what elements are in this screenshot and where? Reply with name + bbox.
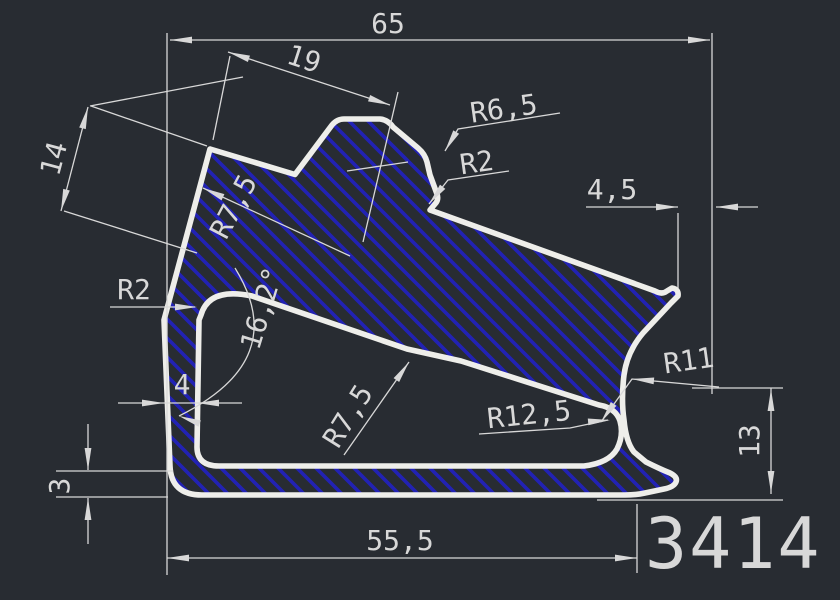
arrowhead — [394, 360, 412, 382]
arrowhead — [588, 417, 611, 426]
arrowhead — [656, 204, 678, 211]
arrowhead — [768, 389, 775, 411]
dimension-text: 14 — [34, 138, 75, 179]
arrowhead — [442, 130, 459, 152]
profile-section — [164, 92, 678, 495]
dimension-text: 65 — [371, 7, 405, 40]
arrowhead — [79, 106, 91, 129]
extension-line — [91, 106, 207, 146]
arrowhead — [368, 95, 391, 108]
dimension-text: 13 — [733, 424, 766, 458]
radius-text: R6,5 — [468, 88, 539, 130]
cad-drawing: 65 19 14 R6,5 R2 4,5 — [0, 0, 840, 600]
dimension-text: 4,5 — [587, 173, 638, 206]
radius-text: R2 — [458, 144, 496, 181]
arrowhead — [167, 555, 189, 562]
arrowhead — [632, 376, 655, 385]
arrowhead — [688, 37, 710, 44]
arrowhead — [85, 498, 92, 520]
arrowhead — [170, 37, 192, 44]
radius-text: R7,5 — [316, 379, 380, 454]
radius-text: R11 — [661, 341, 716, 381]
dimension-3: 3 — [43, 424, 173, 544]
arrowhead — [227, 49, 250, 62]
part-number: 3414 — [645, 503, 822, 585]
arrowhead — [58, 189, 70, 212]
dimension-55-5: 55,5 — [167, 504, 637, 573]
cad-viewport: 65 19 14 R6,5 R2 4,5 — [0, 0, 840, 600]
extension-line — [64, 211, 197, 253]
extension-line — [213, 56, 230, 140]
arrowhead — [142, 400, 164, 407]
dimension-text: 3 — [43, 478, 76, 495]
dimension-4-5: 4,5 — [586, 173, 758, 288]
arrowhead — [615, 555, 637, 562]
arrowhead — [716, 204, 738, 211]
arrowhead — [85, 448, 92, 470]
arrowhead — [768, 471, 775, 493]
dimension-text: 19 — [283, 38, 325, 80]
dimension-text: 55,5 — [366, 524, 433, 557]
dimension-text: 4 — [174, 368, 191, 401]
radius-r7-5-mid: R7,5 — [316, 360, 412, 455]
radius-text: R2 — [117, 273, 151, 306]
radius-r6-5: R6,5 — [442, 88, 560, 153]
